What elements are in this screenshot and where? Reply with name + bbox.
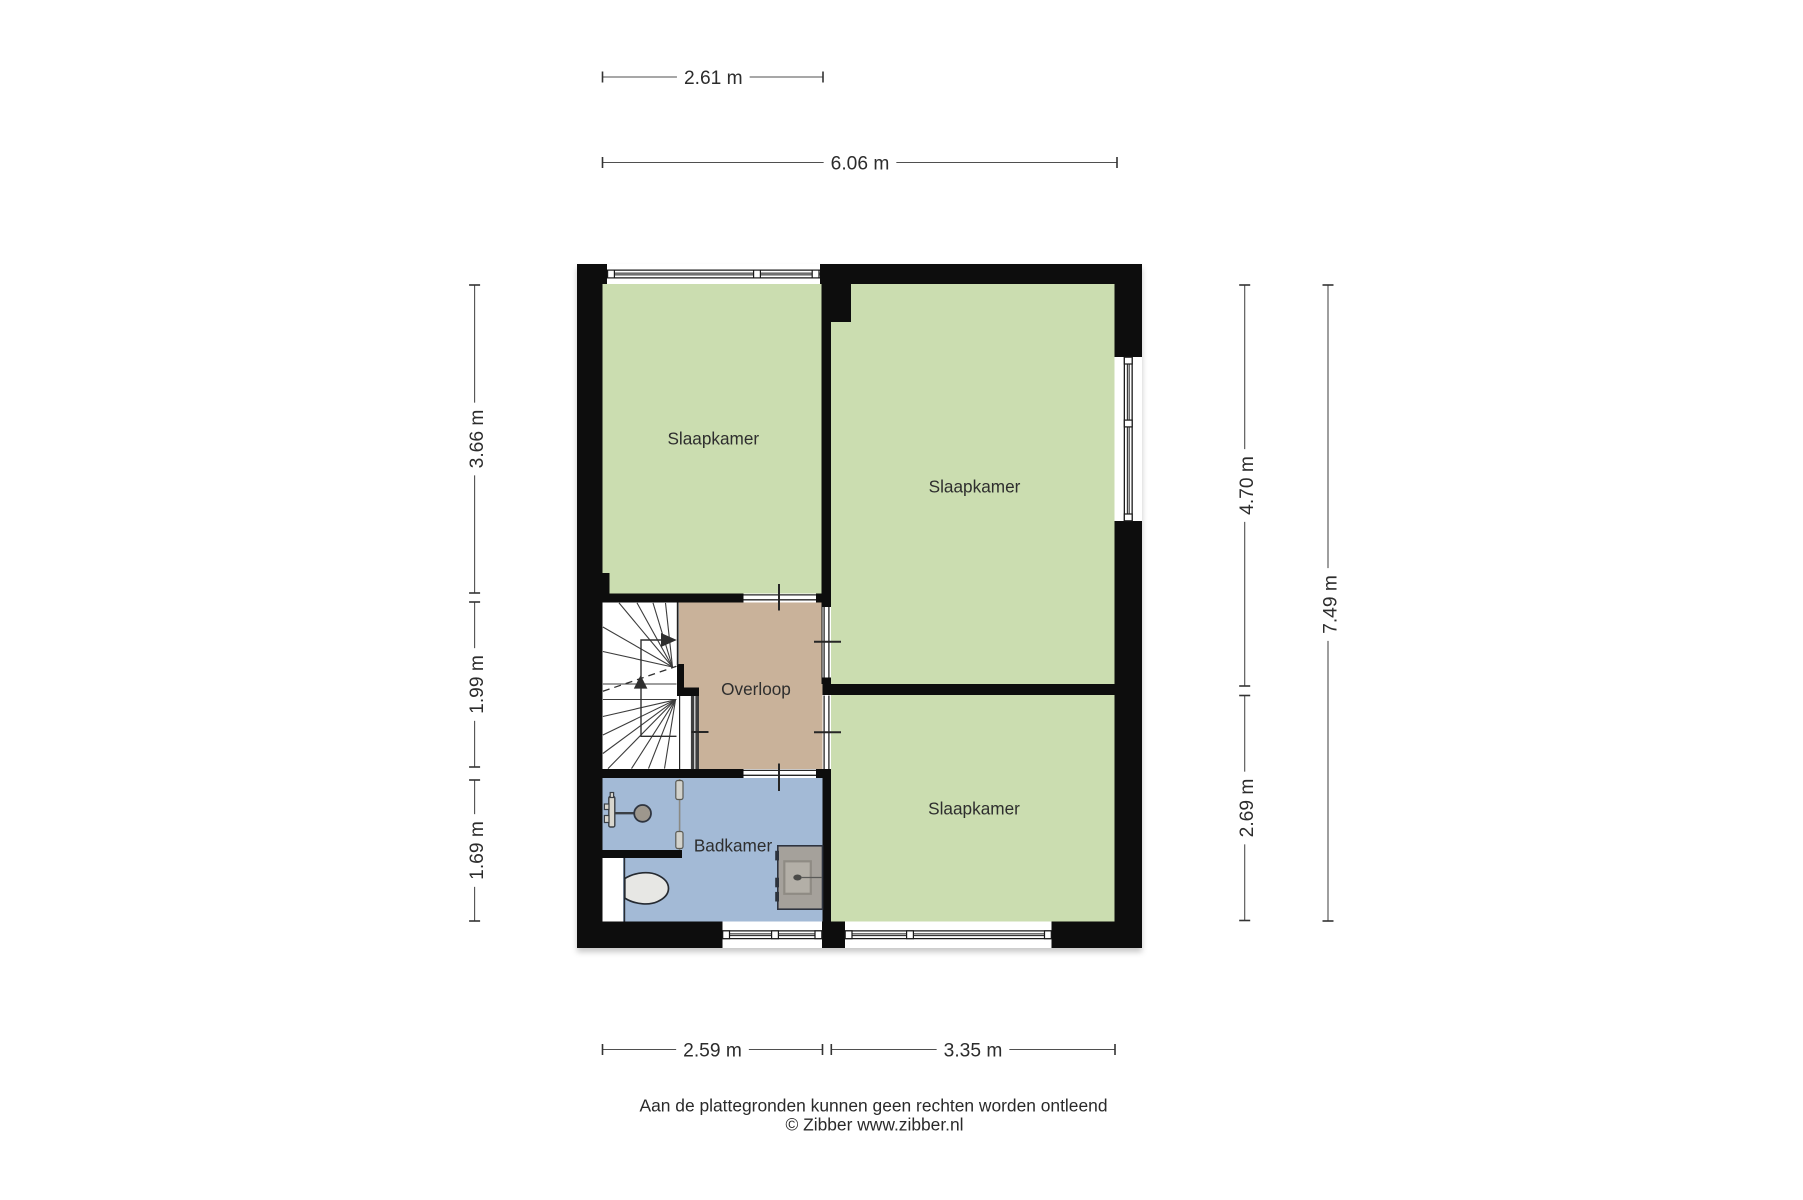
- svg-text:1.69 m: 1.69 m: [467, 821, 488, 880]
- svg-text:2.61 m: 2.61 m: [684, 68, 743, 89]
- svg-text:6.06 m: 6.06 m: [831, 154, 890, 175]
- svg-text:© Zibber www.zibber.nl: © Zibber www.zibber.nl: [785, 1115, 963, 1135]
- svg-text:3.66 m: 3.66 m: [467, 410, 488, 469]
- svg-text:Aan de plattegronden kunnen ge: Aan de plattegronden kunnen geen rechten…: [640, 1095, 1108, 1115]
- svg-text:2.69 m: 2.69 m: [1237, 779, 1258, 838]
- svg-text:Slaapkamer: Slaapkamer: [667, 428, 759, 448]
- svg-text:4.70 m: 4.70 m: [1237, 456, 1258, 515]
- svg-text:Badkamer: Badkamer: [694, 835, 773, 855]
- svg-text:7.49 m: 7.49 m: [1320, 575, 1341, 634]
- svg-text:Slaapkamer: Slaapkamer: [929, 476, 1021, 496]
- svg-text:Slaapkamer: Slaapkamer: [928, 798, 1020, 818]
- svg-text:2.59 m: 2.59 m: [683, 1041, 742, 1062]
- svg-text:Overloop: Overloop: [721, 679, 791, 699]
- svg-text:3.35 m: 3.35 m: [944, 1041, 1003, 1062]
- svg-text:1.99 m: 1.99 m: [467, 655, 488, 714]
